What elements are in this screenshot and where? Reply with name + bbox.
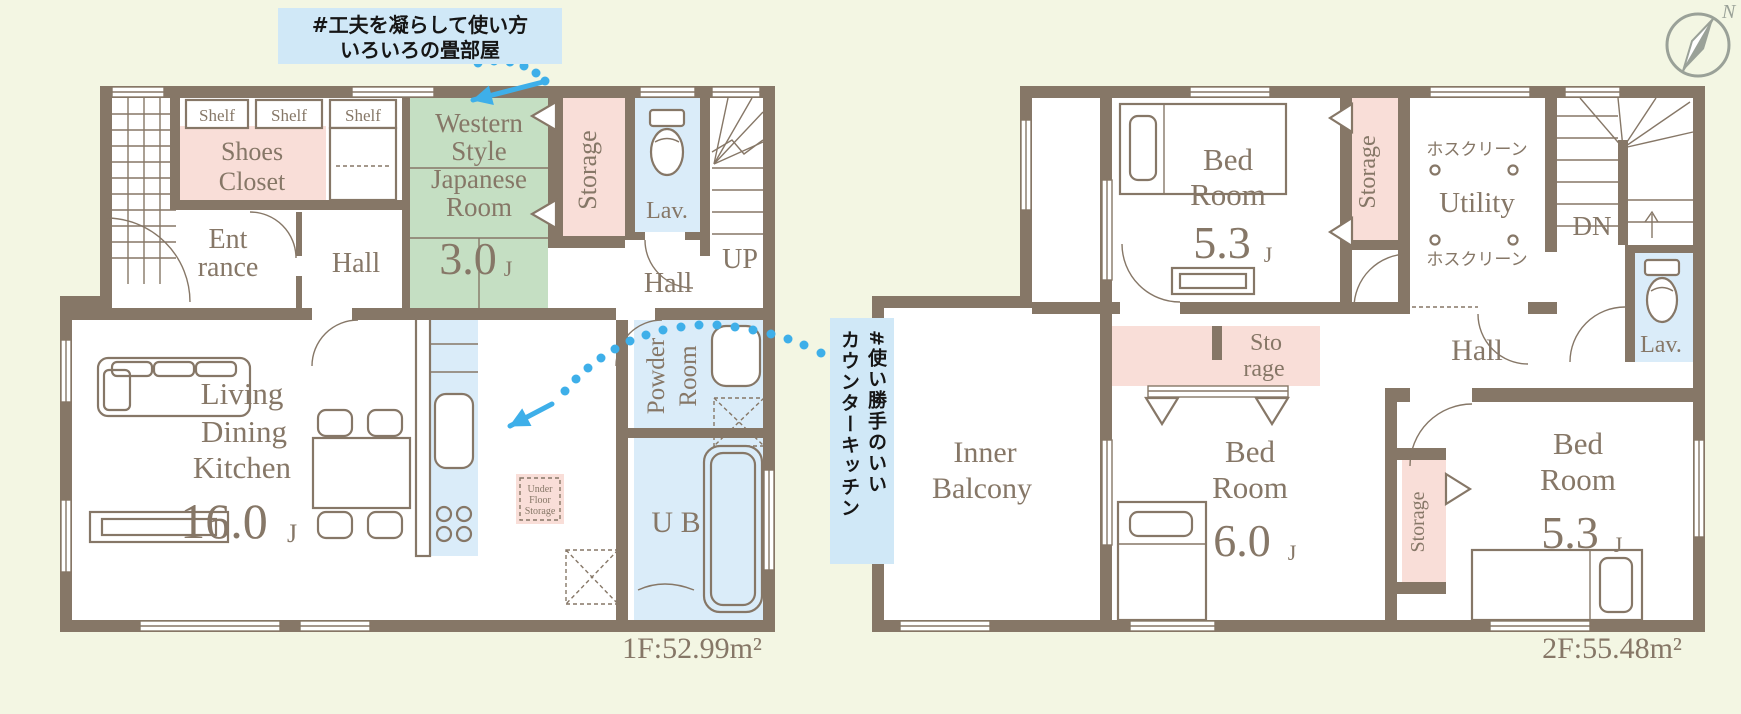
ldk-unit: J (287, 519, 297, 548)
bed3-label: Bed (1553, 426, 1603, 461)
storage-1f-label: Storage (573, 130, 602, 209)
hall-closet (330, 128, 396, 200)
ldk-label1: Living (201, 376, 284, 411)
up-label: UP (722, 244, 758, 275)
annotation-kitchen-line1: #使い勝手のいい (862, 330, 889, 552)
shelf3-label: Shelf (345, 106, 381, 125)
toilet-icon-2f (1645, 260, 1679, 322)
lav-1f-label: Lav. (646, 198, 688, 224)
hall-label-1f-a: Hall (332, 248, 380, 279)
japanese-room-size: 3.0 (439, 233, 497, 284)
hoscreen-label-top: ホスクリーン (1426, 140, 1527, 160)
annotation-tatami-line2: いろいろの畳部屋 (278, 38, 562, 63)
compass-north-label: N (1721, 1, 1737, 23)
storage2-label2: rage (1243, 356, 1284, 382)
storage1-2f-label: Storage (1355, 135, 1381, 208)
japanese-room-label4: Room (446, 192, 512, 222)
utility-label: Utility (1439, 187, 1515, 219)
shelf2-label: Shelf (271, 106, 307, 125)
bed2-size: 6.0 (1213, 515, 1271, 566)
japanese-room-label1: Western (435, 108, 523, 138)
hall-label-2f: Hall (1451, 334, 1503, 367)
powder-room-label2: Room (675, 345, 702, 407)
inner-balcony-label1: Inner (953, 436, 1016, 469)
ldk-label2: Dining (201, 414, 287, 449)
japanese-room-label2: Style (451, 136, 507, 166)
bed3-size: 5.3 (1541, 507, 1599, 558)
powder-room-label1: Powder (643, 337, 670, 414)
hall-label-1f-b: Hall (644, 268, 692, 299)
annotation-kitchen: #使い勝手のいい カウンターキッチン (830, 318, 894, 564)
vanity-sink (712, 326, 760, 386)
annotation-tatami-line1: #工夫を凝らして使い方 (278, 13, 562, 38)
floor-1-plan: Shelf Shelf Shelf Shoes Closet Ent rance… (60, 86, 775, 665)
bed2-unit: J (1288, 540, 1297, 565)
ufs-label2: Floor (529, 495, 551, 506)
sliding-door-bar (1148, 386, 1288, 397)
storage3-label: Storage (1407, 491, 1429, 552)
bed1-unit: J (1264, 242, 1273, 267)
bed2-label: Bed (1225, 434, 1275, 469)
floor2-area-label: 2F:55.48m² (1542, 632, 1682, 665)
entrance-label: Ent (209, 224, 248, 255)
entrance-label2: rance (198, 252, 259, 283)
ufs-label1: Under (528, 484, 554, 495)
bed2-label2: Room (1212, 470, 1288, 505)
floor1-area-label: 1F:52.99m² (622, 632, 762, 665)
toilet-icon (650, 110, 684, 175)
hoscreen-label-bottom: ホスクリーン (1426, 250, 1527, 270)
kitchen-sink (435, 394, 473, 468)
storage2-label1: Sto (1250, 330, 1282, 356)
annotation-tatami: #工夫を凝らして使い方 いろいろの畳部屋 (278, 8, 562, 64)
bed1-label: Bed (1203, 142, 1253, 177)
bed3-unit: J (1614, 532, 1623, 557)
shelf1-label: Shelf (199, 106, 235, 125)
lav-2f-label: Lav. (1640, 332, 1682, 358)
shoes-closet-label: Shoes (221, 137, 283, 166)
floor-2-plan: Bed Room 5.3 J Storage ホスクリーン Utility ホス… (872, 86, 1705, 665)
bed1-size: 5.3 (1193, 217, 1251, 268)
bed3-label2: Room (1540, 462, 1616, 497)
shoes-closet-label2: Closet (219, 167, 286, 196)
japanese-room-unit: J (504, 256, 513, 281)
compass-icon: N (1667, 1, 1737, 76)
ufs-label3: Storage (525, 506, 556, 517)
bed1-label2: Room (1190, 177, 1266, 212)
annotation-kitchen-line2: カウンターキッチン (835, 330, 862, 552)
floorplan-canvas: Shelf Shelf Shelf Shoes Closet Ent rance… (0, 0, 1741, 714)
ldk-size: 16.0 (180, 493, 268, 549)
ldk-label3: Kitchen (193, 450, 292, 485)
ub-label: U B (651, 506, 700, 539)
japanese-room-label3: Japanese (431, 164, 527, 194)
dn-label: DN (1573, 211, 1612, 241)
inner-balcony-label2: Balcony (932, 472, 1032, 505)
